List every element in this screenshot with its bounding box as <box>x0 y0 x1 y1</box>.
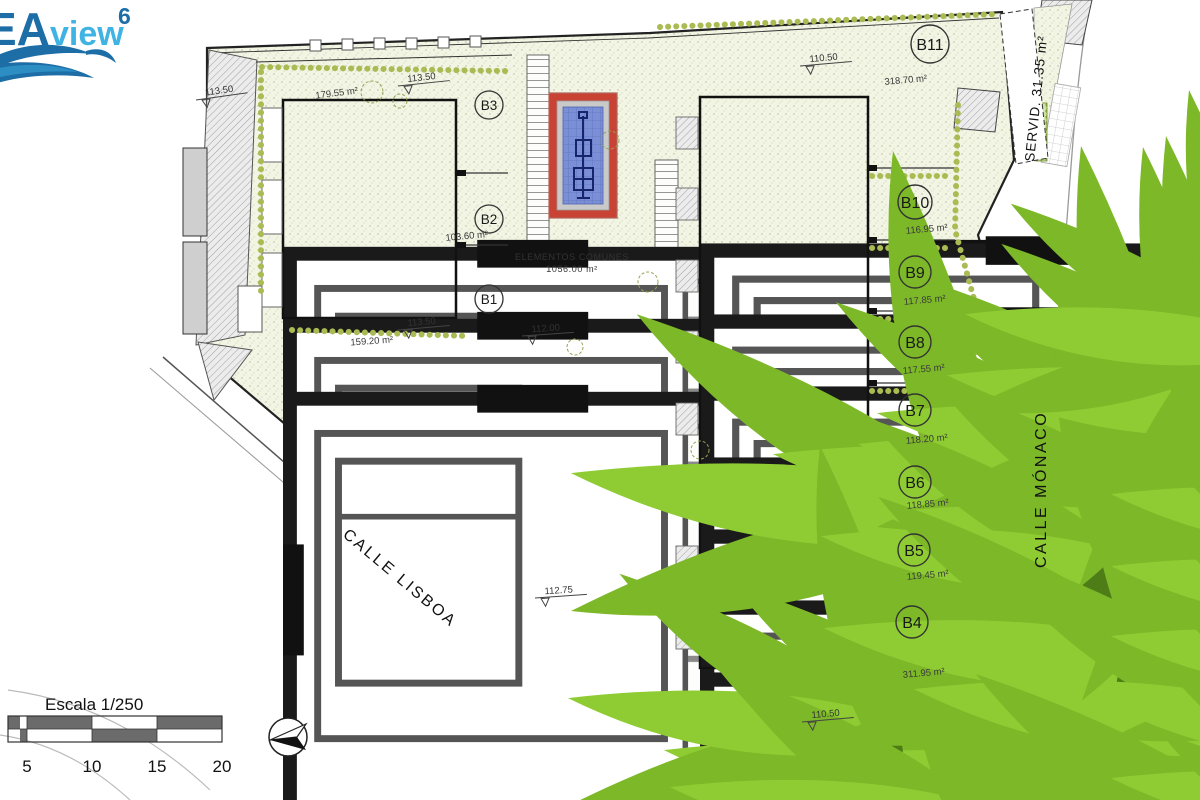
scale-legend: Escala 1/250 5 10 15 20 <box>8 695 231 776</box>
plot-label-text: B5 <box>904 543 924 560</box>
logo: EA view 6 <box>0 3 131 86</box>
plot-label-text: B1 <box>481 292 498 307</box>
scale-tick: 10 <box>83 757 102 776</box>
common-area-value: 1056.00 m² <box>546 264 598 274</box>
scale-title: Escala 1/250 <box>45 695 143 714</box>
plot-label-text: B8 <box>905 335 925 352</box>
site-plan-canvas: PISCINA 64.00m2 <box>0 0 1200 800</box>
playground <box>549 93 617 218</box>
logo-wave-icon <box>0 45 116 86</box>
plot-label-text: B9 <box>905 265 925 282</box>
logo-superscript: 6 <box>118 3 131 29</box>
street-label-monaco: CALLE MÓNACO <box>1031 411 1050 568</box>
plot-label-text: B2 <box>481 212 498 227</box>
plot-label-text: B3 <box>481 98 498 113</box>
plot-label-text: B7 <box>905 403 925 420</box>
common-area-title: ELEMENTOS COMUNES <box>515 252 629 262</box>
plot-label-text: B10 <box>901 195 930 212</box>
scale-tick: 20 <box>213 757 232 776</box>
scale-tick: 15 <box>148 757 167 776</box>
plot-label-text: B11 <box>916 37 943 54</box>
scale-bar <box>8 716 222 742</box>
plot-label-text: B4 <box>902 615 922 632</box>
plot-label-text: B6 <box>905 475 925 492</box>
north-arrow <box>269 718 307 756</box>
scale-tick: 5 <box>22 757 31 776</box>
